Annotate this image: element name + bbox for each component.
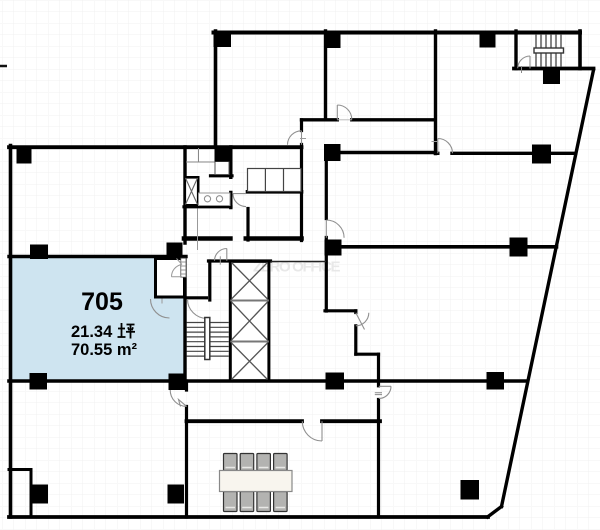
svg-text:705: 705	[81, 288, 123, 316]
svg-text:70.55 m²: 70.55 m²	[71, 341, 138, 359]
svg-text:21.34: 21.34	[71, 323, 113, 341]
